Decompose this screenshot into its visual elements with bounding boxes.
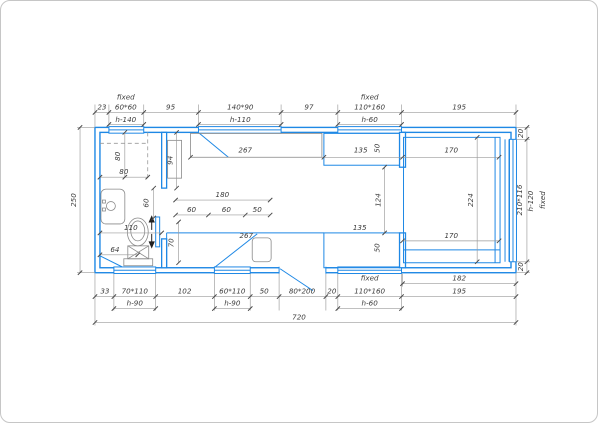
bedroom-divider-wall — [400, 132, 406, 267]
dim-80-vertical: 80 — [113, 151, 122, 161]
entry-door-opening — [279, 266, 326, 275]
window-60x60 — [109, 127, 144, 134]
window-60x110 — [214, 267, 250, 274]
dim-210x116: 210*116 — [515, 184, 524, 215]
dim-60-a: 60 — [187, 205, 197, 214]
dim-h120: h-120 — [526, 190, 535, 211]
dim-fixed-right: fixed — [538, 191, 547, 209]
dim-140x90: 140*90 — [227, 102, 254, 111]
kitchen-sink — [252, 238, 271, 262]
sliding-door — [149, 216, 159, 247]
floor-plan-canvas: fixed 23 60*60 95 140*90 97 fixed 110*16… — [1, 1, 598, 423]
dim-102: 102 — [178, 287, 192, 296]
dim-80-horizontal: 80 — [119, 167, 129, 176]
drawing-sheet: fixed 23 60*60 95 140*90 97 fixed 110*16… — [0, 0, 598, 423]
dim-250: 250 — [69, 193, 78, 207]
counter-135-bottom — [324, 233, 400, 268]
dim-720-total: 720 — [292, 312, 306, 321]
dim-50-top: 50 — [373, 143, 382, 153]
dim-20-bottom: 20 — [327, 287, 337, 296]
dim-h90-mid: h-90 — [224, 299, 241, 308]
slide-direction-arrows — [149, 216, 154, 247]
dim-fixed-bottom: fixed — [361, 274, 379, 283]
dim-h60-top: h-60 — [362, 115, 379, 124]
dim-50-kitchen: 50 — [253, 205, 263, 214]
dim-60x60: 60*60 — [115, 102, 137, 111]
dim-170-top: 170 — [444, 145, 458, 154]
dim-h90-left: h-90 — [127, 299, 144, 308]
dim-fixed-top-right: fixed — [361, 93, 379, 102]
dim-60-b: 60 — [222, 205, 232, 214]
dim-h60-bottom: h-60 — [362, 299, 379, 308]
dim-170-bottom: 170 — [444, 231, 458, 240]
dim-267-top: 267 — [238, 145, 252, 154]
dim-h140: h-140 — [115, 115, 136, 124]
dim-50-bottom: 50 — [260, 287, 270, 296]
dim-23: 23 — [97, 102, 107, 111]
window-110x160-top — [338, 127, 402, 134]
dim-135-bottom: 135 — [353, 223, 367, 232]
dim-110-toilet: 110 — [124, 223, 138, 232]
dim-fixed-top-left: fixed — [117, 93, 135, 102]
dim-20-right-top: 20 — [516, 128, 525, 138]
dim-182: 182 — [452, 274, 466, 283]
dim-267-bottom: 267 — [239, 231, 253, 240]
dim-224: 224 — [466, 193, 475, 207]
dim-95: 95 — [166, 102, 176, 111]
bed — [404, 137, 501, 262]
dim-180: 180 — [216, 190, 230, 199]
dim-97: 97 — [304, 102, 314, 111]
dim-110x160-top: 110*160 — [354, 102, 385, 111]
window-70x110 — [114, 267, 156, 274]
dim-60x110: 60*110 — [219, 287, 246, 296]
dim-135-top: 135 — [354, 145, 368, 154]
dim-70: 70 — [167, 238, 176, 248]
dim-80x200: 80*200 — [289, 287, 316, 296]
dim-70x110: 70*110 — [122, 287, 149, 296]
kitchen-counter-top — [191, 133, 322, 157]
bathroom-sink — [101, 189, 125, 224]
dim-h110: h-110 — [230, 115, 251, 124]
dim-33: 33 — [100, 287, 110, 296]
dim-50-bottom-counter: 50 — [373, 243, 382, 253]
dim-110x160-bottom: 110*160 — [354, 287, 385, 296]
dim-195-bottom: 195 — [452, 287, 466, 296]
dim-124: 124 — [374, 193, 383, 207]
dim-20-right-bottom: 20 — [516, 262, 525, 272]
dim-64-toilet: 64 — [110, 245, 120, 254]
dim-60-slide: 60 — [142, 198, 151, 208]
dim-94: 94 — [166, 155, 175, 165]
dim-195-top: 195 — [452, 102, 466, 111]
window-140x90 — [198, 127, 281, 134]
